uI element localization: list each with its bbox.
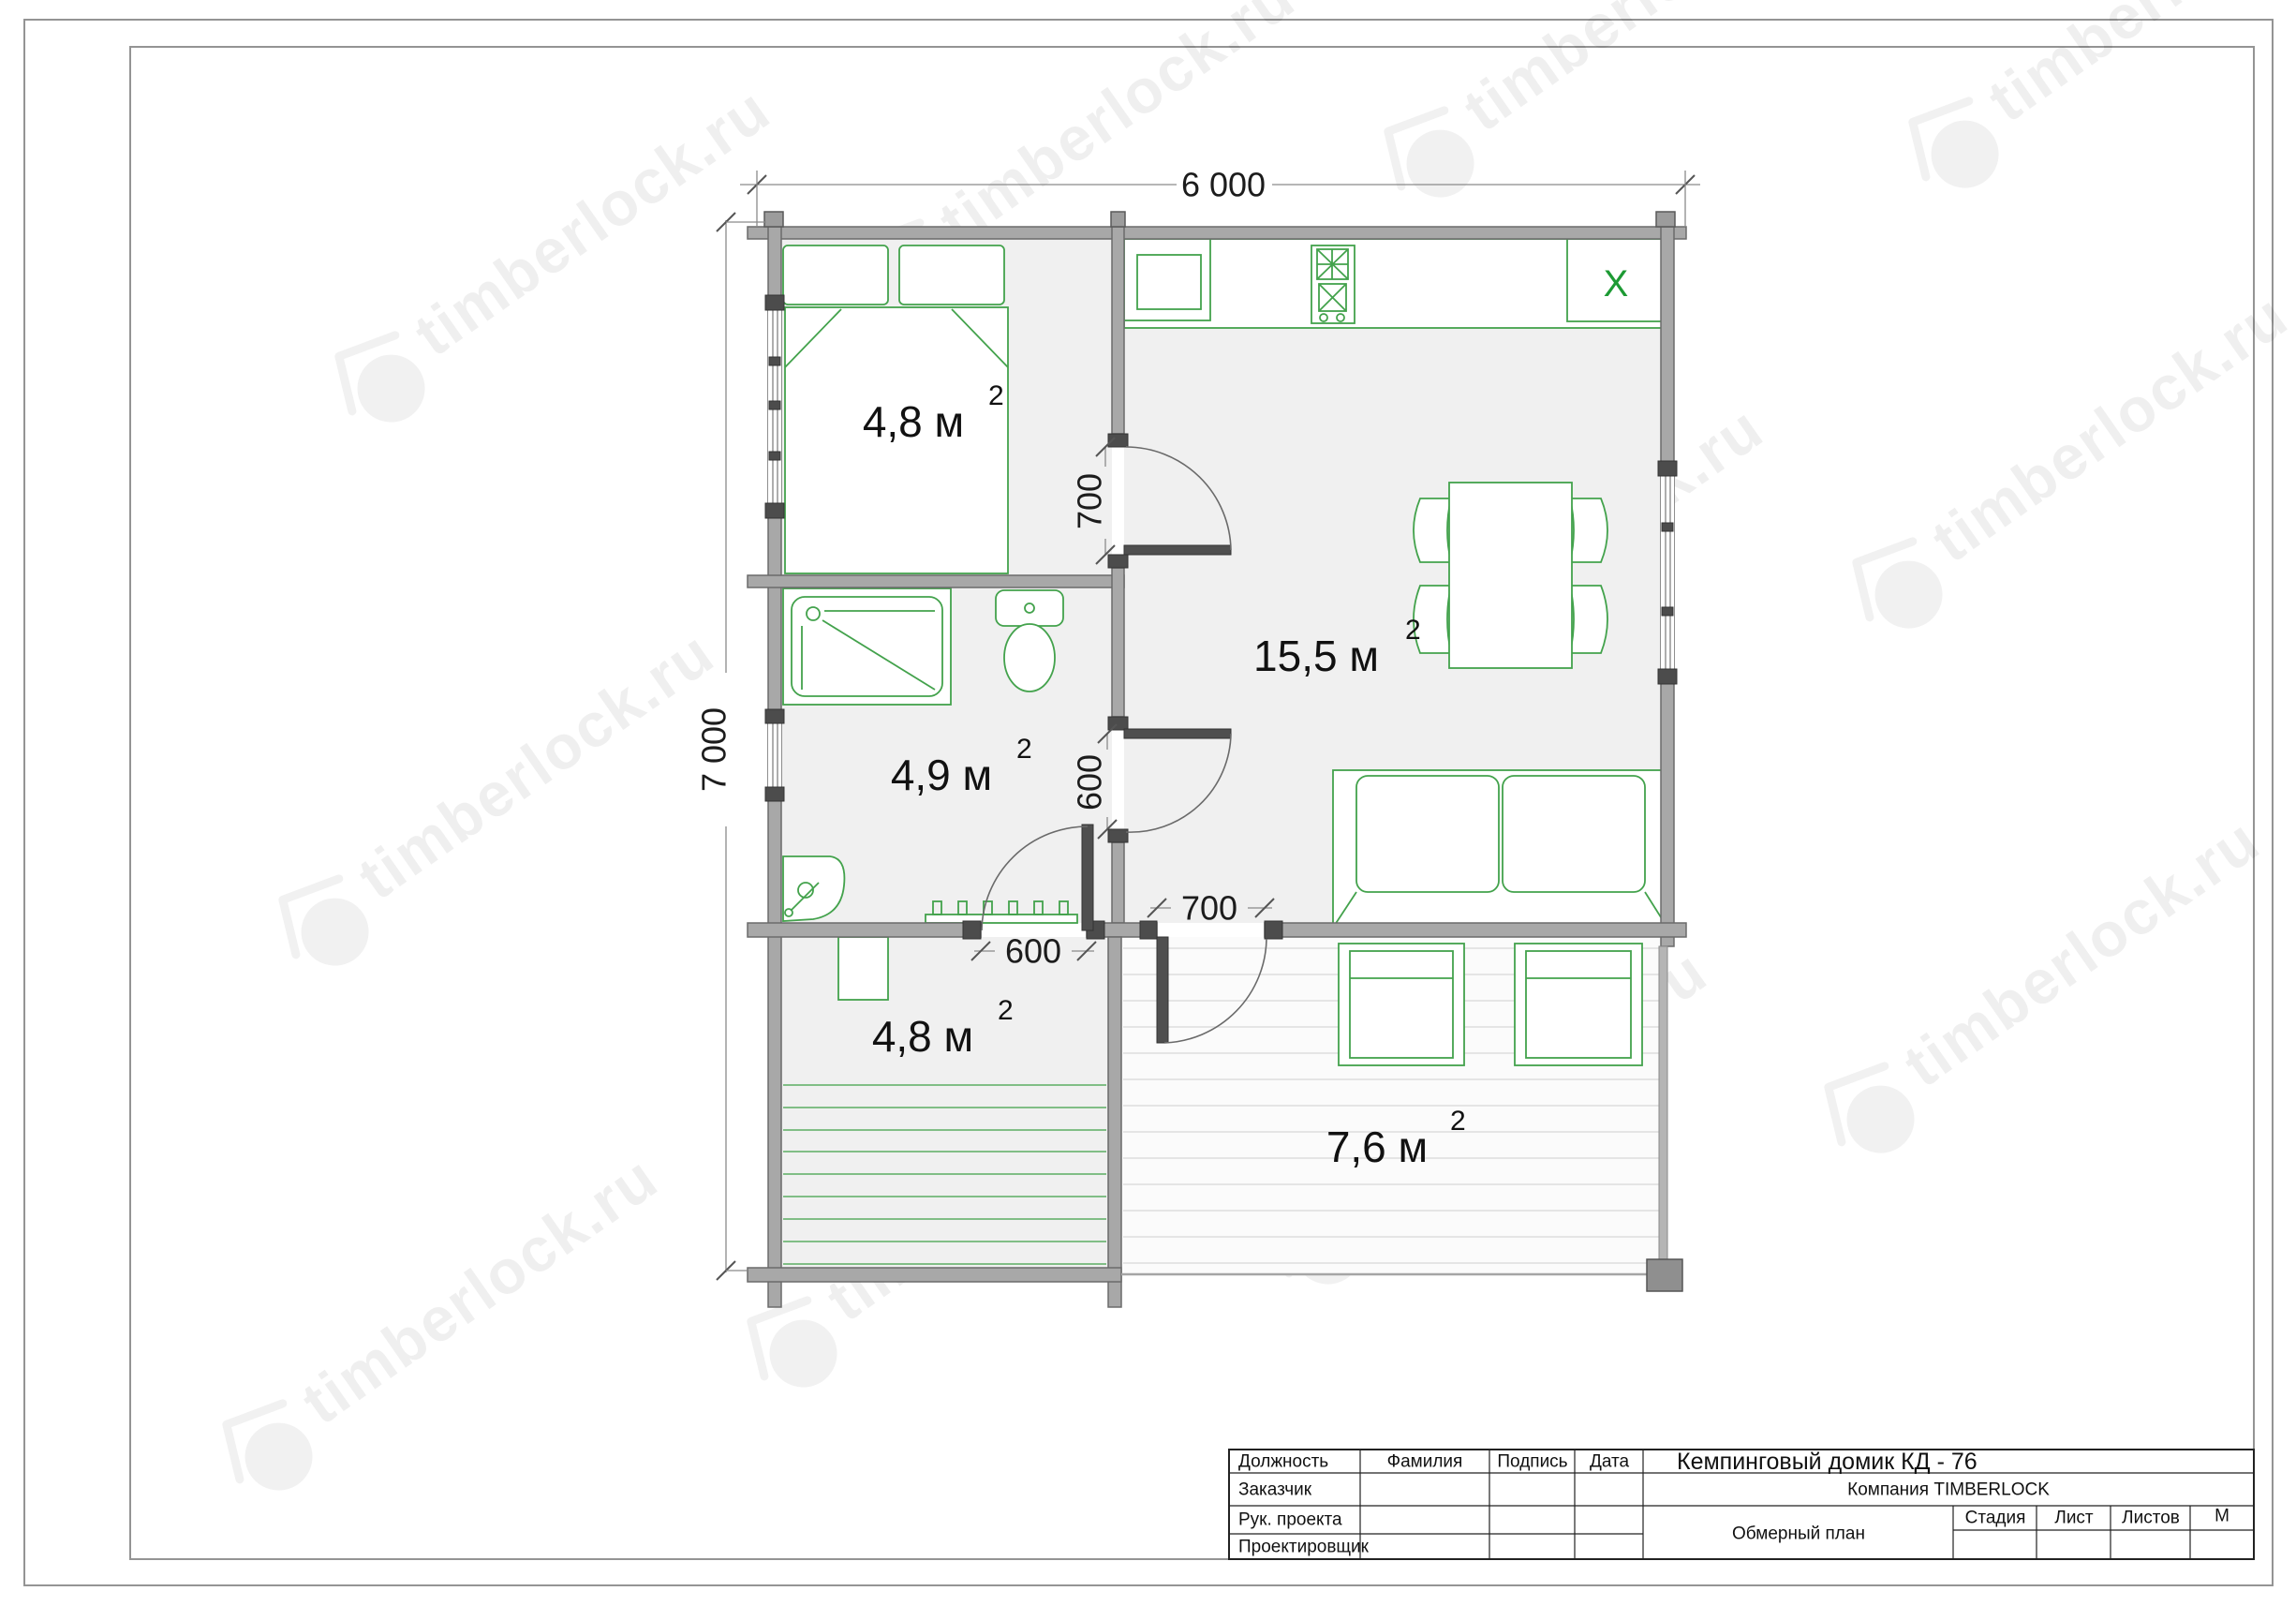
terrace-edge: [1659, 946, 1667, 1263]
shower-tray: [783, 588, 951, 705]
room-label-living-sup: 2: [1405, 615, 1421, 646]
kitchen-sink: [1124, 239, 1210, 320]
terrace-post: [1647, 1259, 1682, 1291]
watermark-text: timberlock.ru: [402, 74, 782, 369]
tb-drawing-name: Обмерный план: [1732, 1524, 1865, 1544]
tb-col-date: Дата: [1590, 1452, 1630, 1472]
wall-top: [748, 227, 1686, 239]
wall-separator: [1108, 937, 1121, 1307]
dim-height-label: 7 000: [695, 707, 733, 792]
dimension-overall-width: 6 000: [740, 166, 1700, 228]
tb-project-title: Кемпинговый домик КД - 76: [1677, 1449, 1978, 1475]
tb-col-signature: Подпись: [1497, 1452, 1567, 1472]
room-label-entry: 4,8 м: [872, 1012, 973, 1061]
room-label-bedroom: 4,8 м: [863, 397, 964, 446]
wall-internal: [1112, 568, 1124, 717]
title-block: Должность Фамилия Подпись Дата Кемпингов…: [1229, 1449, 2254, 1559]
entry-floor: [781, 937, 1108, 1268]
pillow: [783, 245, 888, 305]
tb-col-position: Должность: [1238, 1452, 1328, 1472]
floor-plan-drawing: timberlock.ru timberlock.ru timberlock.r…: [0, 0, 2296, 1606]
watermark-text: timberlock.ru: [289, 1142, 670, 1437]
room-label-bathroom: 4,9 м: [891, 751, 992, 799]
log-end: [1656, 212, 1675, 227]
chair: [1414, 498, 1451, 562]
tb-col-sheet: Лист: [2054, 1509, 2094, 1528]
wall-internal: [1112, 227, 1124, 434]
tb-row-project-lead: Рук. проекта: [1238, 1510, 1342, 1530]
pillow: [899, 245, 1004, 305]
dim-bedroom-door-label: 700: [1071, 473, 1109, 529]
entry-step-box: [838, 937, 888, 1000]
wall-internal: [1112, 842, 1124, 923]
dim-width-label: 6 000: [1181, 166, 1266, 204]
chair: [1515, 944, 1642, 1065]
fridge-label: X: [1604, 263, 1629, 305]
window-living: [1658, 461, 1677, 684]
watermark-text: timberlock.ru: [1919, 280, 2296, 575]
fridge: X: [1567, 239, 1663, 321]
wall-bottom: [1265, 923, 1686, 937]
tb-col-scale: М: [2215, 1507, 2229, 1526]
wall-entry-bottom: [748, 1268, 1121, 1282]
dim-bathroom-door-label: 600: [1071, 754, 1109, 810]
window-bathroom: [765, 709, 784, 801]
log-end: [764, 212, 783, 227]
dimension-overall-height: 7 000: [695, 213, 767, 1280]
stove: [1311, 245, 1355, 323]
chair: [1339, 944, 1464, 1065]
room-label-bedroom-sup: 2: [988, 380, 1004, 411]
tb-row-designer: Проектировщик: [1238, 1538, 1370, 1557]
room-label-terrace-sup: 2: [1450, 1106, 1466, 1137]
dim-terrace-door-label: 700: [1181, 889, 1237, 928]
room-label-terrace: 7,6 м: [1326, 1123, 1428, 1171]
room-label-entry-sup: 2: [998, 995, 1014, 1026]
room-label-living: 15,5 м: [1253, 632, 1379, 680]
window-bedroom: [765, 295, 784, 518]
watermark-text: timberlock.ru: [1891, 805, 2272, 1100]
tb-col-stage: Стадия: [1965, 1509, 2026, 1528]
wall-mid: [748, 575, 1124, 587]
sofa: [1333, 770, 1667, 928]
drawing-sheet: timberlock.ru timberlock.ru timberlock.r…: [0, 0, 2296, 1606]
wall-bottom: [748, 923, 981, 937]
watermark-text: timberlock.ru: [1451, 0, 1831, 144]
log-end: [1111, 212, 1125, 227]
dim-entry-door-label: 600: [1005, 932, 1061, 971]
chair: [1570, 586, 1607, 653]
tb-col-sheets: Листов: [2122, 1509, 2180, 1528]
chair: [1570, 498, 1607, 562]
tb-row-customer: Заказчик: [1238, 1480, 1312, 1500]
room-label-bathroom-sup: 2: [1016, 734, 1032, 765]
tb-company: Компания TIMBERLOCK: [1847, 1480, 2050, 1500]
watermark-text: timberlock.ru: [346, 617, 726, 913]
table-top: [1449, 483, 1572, 668]
tb-col-surname: Фамилия: [1387, 1452, 1463, 1472]
